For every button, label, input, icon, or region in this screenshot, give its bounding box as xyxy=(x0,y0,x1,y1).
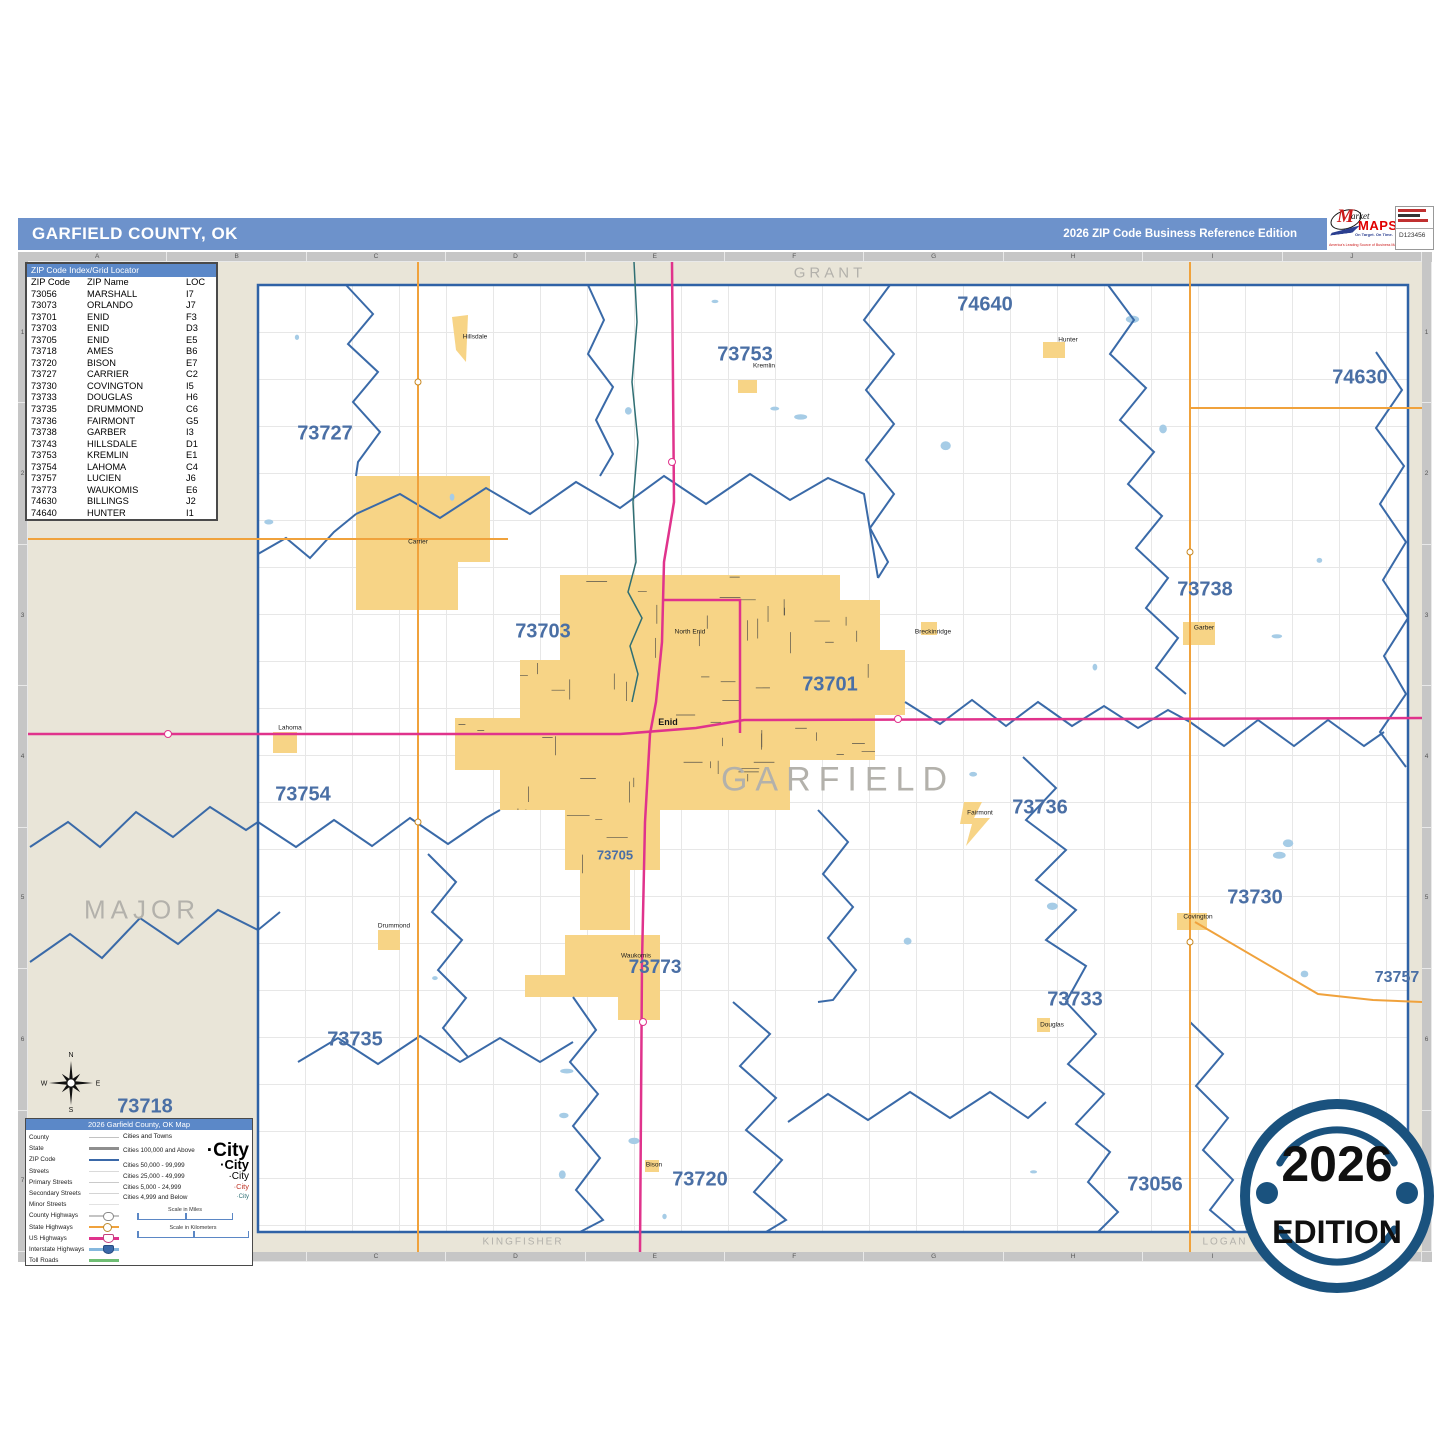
zip-code-label: 73773 xyxy=(629,957,682,979)
legend-road-row: ZIP Code xyxy=(29,1154,119,1165)
zip-index-header: ZIP Code Index/Grid Locator xyxy=(27,264,216,277)
grid-column-letter: J xyxy=(1283,252,1422,262)
zip-index-row: 73701ENIDF3 xyxy=(27,312,216,324)
compass-s: S xyxy=(69,1107,74,1113)
info-line xyxy=(1398,219,1428,222)
zip-index-row: 73705ENIDE5 xyxy=(27,335,216,347)
town-name-label: Carrier xyxy=(408,539,428,546)
zip-code-label: 73730 xyxy=(1227,887,1283,910)
compass-e: E xyxy=(96,1081,101,1088)
grid-column-letter: F xyxy=(725,1252,864,1262)
legend-road-row: Streets xyxy=(29,1166,119,1177)
zip-index-row: 73718AMESB6 xyxy=(27,346,216,358)
grid-column-letter: H xyxy=(1004,1252,1143,1262)
town-name-label: Kremlin xyxy=(753,363,775,370)
legend-header: 2026 Garfield County, OK Map xyxy=(26,1119,252,1130)
county-name-label: MAJOR xyxy=(84,895,200,926)
logo-subline: America's Leading Source of Business Map… xyxy=(1329,243,1400,247)
legend-cities: Cities and Towns Cities 100,000 and Abov… xyxy=(119,1132,249,1266)
town-name-label: Fairmont xyxy=(967,810,993,817)
zip-code-label: 73736 xyxy=(1012,797,1068,820)
city-size-sample: ·City xyxy=(220,1159,249,1171)
zip-code-label: 73703 xyxy=(515,621,571,644)
town-name-label: Hillsdale xyxy=(463,334,488,341)
publisher-info-box: D123456 xyxy=(1395,206,1434,250)
zip-index-row: 73730COVINGTONI5 xyxy=(27,381,216,393)
legend-line-sample-state xyxy=(89,1147,119,1150)
zip-index-row: 74640HUNTERI1 xyxy=(27,508,216,520)
grid-row-number: 4 xyxy=(1422,686,1432,827)
town-name-label: North Enid xyxy=(675,629,706,636)
compass-n: N xyxy=(68,1052,73,1059)
zip-index-row: 73727CARRIERC2 xyxy=(27,369,216,381)
legend-line-sample-county xyxy=(89,1137,119,1139)
zip-code-label: 73754 xyxy=(275,784,331,807)
town-name-label: Garber xyxy=(1194,625,1214,632)
zip-index-row: 73773WAUKOMISE6 xyxy=(27,485,216,497)
map-canvas: GRANTMAJORGARFIELDKINGFISHERLOGAN7372773… xyxy=(28,262,1422,1252)
legend-road-row: Toll Roads xyxy=(29,1255,119,1266)
legend-line-sample-ushwy xyxy=(89,1237,119,1240)
legend-road-row: County xyxy=(29,1132,119,1143)
legend-road-row: Secondary Streets xyxy=(29,1188,119,1199)
zip-index-row: 73720BISONE7 xyxy=(27,358,216,370)
legend-line-sample-streets xyxy=(89,1171,119,1172)
legend-line-sample-interstate xyxy=(89,1248,119,1251)
zip-code-label: 73720 xyxy=(672,1169,728,1192)
legend-city-row: Cities 25,000 - 49,999·City xyxy=(123,1171,249,1182)
zip-code-label: 73718 xyxy=(117,1096,173,1119)
grid-column-letter: C xyxy=(307,252,446,262)
zip-index-row: 73703ENIDD3 xyxy=(27,323,216,335)
legend-road-row: US Highways xyxy=(29,1233,119,1244)
legend-city-row: Cities 50,000 - 99,999·City xyxy=(123,1159,249,1171)
legend-line-sample-statehwy xyxy=(89,1226,119,1228)
grid-row-number: 3 xyxy=(18,545,28,686)
grid-row-number: 6 xyxy=(1422,969,1432,1110)
zip-index-row: 73736FAIRMONTG5 xyxy=(27,416,216,428)
grid-column-letter: E xyxy=(586,252,725,262)
legend-road-types: CountyStateZIP CodeStreetsPrimary Street… xyxy=(29,1132,119,1266)
cities-header: Cities and Towns xyxy=(123,1133,249,1140)
zip-code-label: 73056 xyxy=(1127,1174,1183,1197)
grid-column-letter: I xyxy=(1143,252,1282,262)
legend-road-row: State xyxy=(29,1143,119,1154)
compass-w: W xyxy=(41,1081,48,1088)
county-name-label: GARFIELD xyxy=(721,761,955,800)
grid-column-letter: D xyxy=(446,252,585,262)
grid-column-letter: A xyxy=(28,252,167,262)
town-name-label: Covington xyxy=(1183,914,1212,921)
city-size-sample: ·City xyxy=(237,1192,249,1202)
zip-index-table: ZIP Code Index/Grid Locator ZIP CodeZIP … xyxy=(25,262,218,521)
product-code: D123456 xyxy=(1396,228,1433,239)
zip-index-row: 73754LAHOMAC4 xyxy=(27,462,216,474)
badge-year: 2026 xyxy=(1281,1136,1392,1192)
town-name-label: Waukomis xyxy=(621,953,651,960)
grid-column-letter: D xyxy=(446,1252,585,1262)
grid-column-letter: F xyxy=(725,252,864,262)
zip-code-label: 73757 xyxy=(1375,969,1420,987)
zip-index-row: 73757LUCIENJ6 xyxy=(27,473,216,485)
zip-code-label: 74640 xyxy=(957,294,1013,317)
zip-index-row: 73733DOUGLASH6 xyxy=(27,392,216,404)
scale-kilometers: Scale in Kilometers xyxy=(137,1225,249,1238)
grid-column-letter: G xyxy=(864,1252,1003,1262)
legend-road-row: Interstate Highways xyxy=(29,1244,119,1255)
zip-index-row: 73743HILLSDALED1 xyxy=(27,439,216,451)
grid-row-number: 5 xyxy=(18,828,28,969)
zip-index-row: 73056MARSHALLI7 xyxy=(27,289,216,301)
town-name-label: Enid xyxy=(658,717,678,727)
legend-line-sample-minor xyxy=(89,1204,119,1205)
zip-code-label: 73735 xyxy=(327,1029,383,1052)
zip-code-label: 73705 xyxy=(597,848,633,863)
legend-city-row: Cities 5,000 - 24,999·City xyxy=(123,1182,249,1192)
badge-right-dot xyxy=(1396,1182,1418,1204)
legend-road-row: State Highways xyxy=(29,1222,119,1233)
badge-left-dot xyxy=(1256,1182,1278,1204)
zip-index-row: 73735DRUMMONDC6 xyxy=(27,404,216,416)
legend-line-sample-primary xyxy=(89,1182,119,1184)
grid-row-number: 6 xyxy=(18,969,28,1110)
zip-index-row: 74630BILLINGSJ2 xyxy=(27,496,216,508)
map-legend: 2026 Garfield County, OK Map CountyState… xyxy=(25,1118,253,1266)
badge-edition: EDITION xyxy=(1272,1214,1402,1250)
zip-index-row: 73753KREMLINE1 xyxy=(27,450,216,462)
town-name-label: Douglas xyxy=(1040,1022,1064,1029)
grid-row-number: 2 xyxy=(1422,403,1432,544)
grid-row-number: 1 xyxy=(1422,262,1432,403)
compass-rose: N E S W xyxy=(39,1049,103,1113)
market-maps-logo: M arket MAPS On Target. On Time. America… xyxy=(1327,205,1394,251)
zip-index-row: 73738GARBERI3 xyxy=(27,427,216,439)
map-labels-layer: GRANTMAJORGARFIELDKINGFISHERLOGAN7372773… xyxy=(28,262,1422,1252)
grid-ruler-top: ABCDEFGHIJ xyxy=(28,252,1422,262)
ruler-corner xyxy=(18,252,28,262)
logo-word-maps: MAPS xyxy=(1358,218,1398,233)
zip-index-row: 73073ORLANDOJ7 xyxy=(27,300,216,312)
zip-code-label: 73733 xyxy=(1047,989,1103,1012)
town-name-label: Lahoma xyxy=(278,725,302,732)
town-name-label: Drummond xyxy=(378,923,410,930)
ruler-corner xyxy=(1422,252,1432,262)
grid-column-letter: C xyxy=(307,1252,446,1262)
edition-badge: 2026 EDITION xyxy=(1234,1093,1440,1299)
county-name-label: GRANT xyxy=(794,265,867,282)
grid-column-letter: B xyxy=(167,252,306,262)
town-name-label: Breckinridge xyxy=(915,629,951,636)
map-sheet: GARFIELD COUNTY, OK 2026 ZIP Code Busine… xyxy=(18,205,1432,1268)
info-line xyxy=(1398,214,1420,217)
legend-city-row: Cities 4,999 and Below·City xyxy=(123,1192,249,1202)
county-name-label: KINGFISHER xyxy=(482,1237,563,1248)
scale-km-bar xyxy=(137,1231,249,1238)
page-title: GARFIELD COUNTY, OK xyxy=(18,224,238,244)
zip-code-label: 73701 xyxy=(802,674,858,697)
scale-miles: Scale in Miles xyxy=(137,1207,233,1220)
grid-column-letter: H xyxy=(1004,252,1143,262)
grid-row-number: 5 xyxy=(1422,828,1432,969)
grid-column-letter: G xyxy=(864,252,1003,262)
legend-road-row: Minor Streets xyxy=(29,1199,119,1210)
town-name-label: Bison xyxy=(646,1162,662,1169)
scale-miles-bar xyxy=(137,1213,233,1220)
city-size-sample: ·City xyxy=(234,1182,249,1192)
zip-code-label: 73738 xyxy=(1177,579,1233,602)
zip-code-label: 74630 xyxy=(1332,367,1388,390)
grid-row-number: 3 xyxy=(1422,545,1432,686)
legend-road-row: County Highways xyxy=(29,1210,119,1221)
zip-code-label: 73727 xyxy=(297,423,353,446)
legend-line-sample-secondary xyxy=(89,1193,119,1194)
grid-column-letter: E xyxy=(586,1252,725,1262)
town-name-label: Hunter xyxy=(1058,337,1078,344)
title-bar: GARFIELD COUNTY, OK 2026 ZIP Code Busine… xyxy=(18,218,1327,250)
legend-road-row: Primary Streets xyxy=(29,1177,119,1188)
logo-tagline: On Target. On Time. xyxy=(1355,232,1393,237)
zip-index-column-header: ZIP CodeZIP NameLOC xyxy=(27,277,216,289)
legend-line-sample-countyhwy xyxy=(89,1215,119,1217)
grid-row-number: 4 xyxy=(18,686,28,827)
legend-line-sample-zip xyxy=(89,1159,119,1161)
edition-subtitle: 2026 ZIP Code Business Reference Edition xyxy=(1063,228,1327,240)
city-size-sample: ·City xyxy=(228,1171,249,1182)
info-line xyxy=(1398,209,1426,212)
legend-line-sample-toll xyxy=(89,1259,119,1262)
